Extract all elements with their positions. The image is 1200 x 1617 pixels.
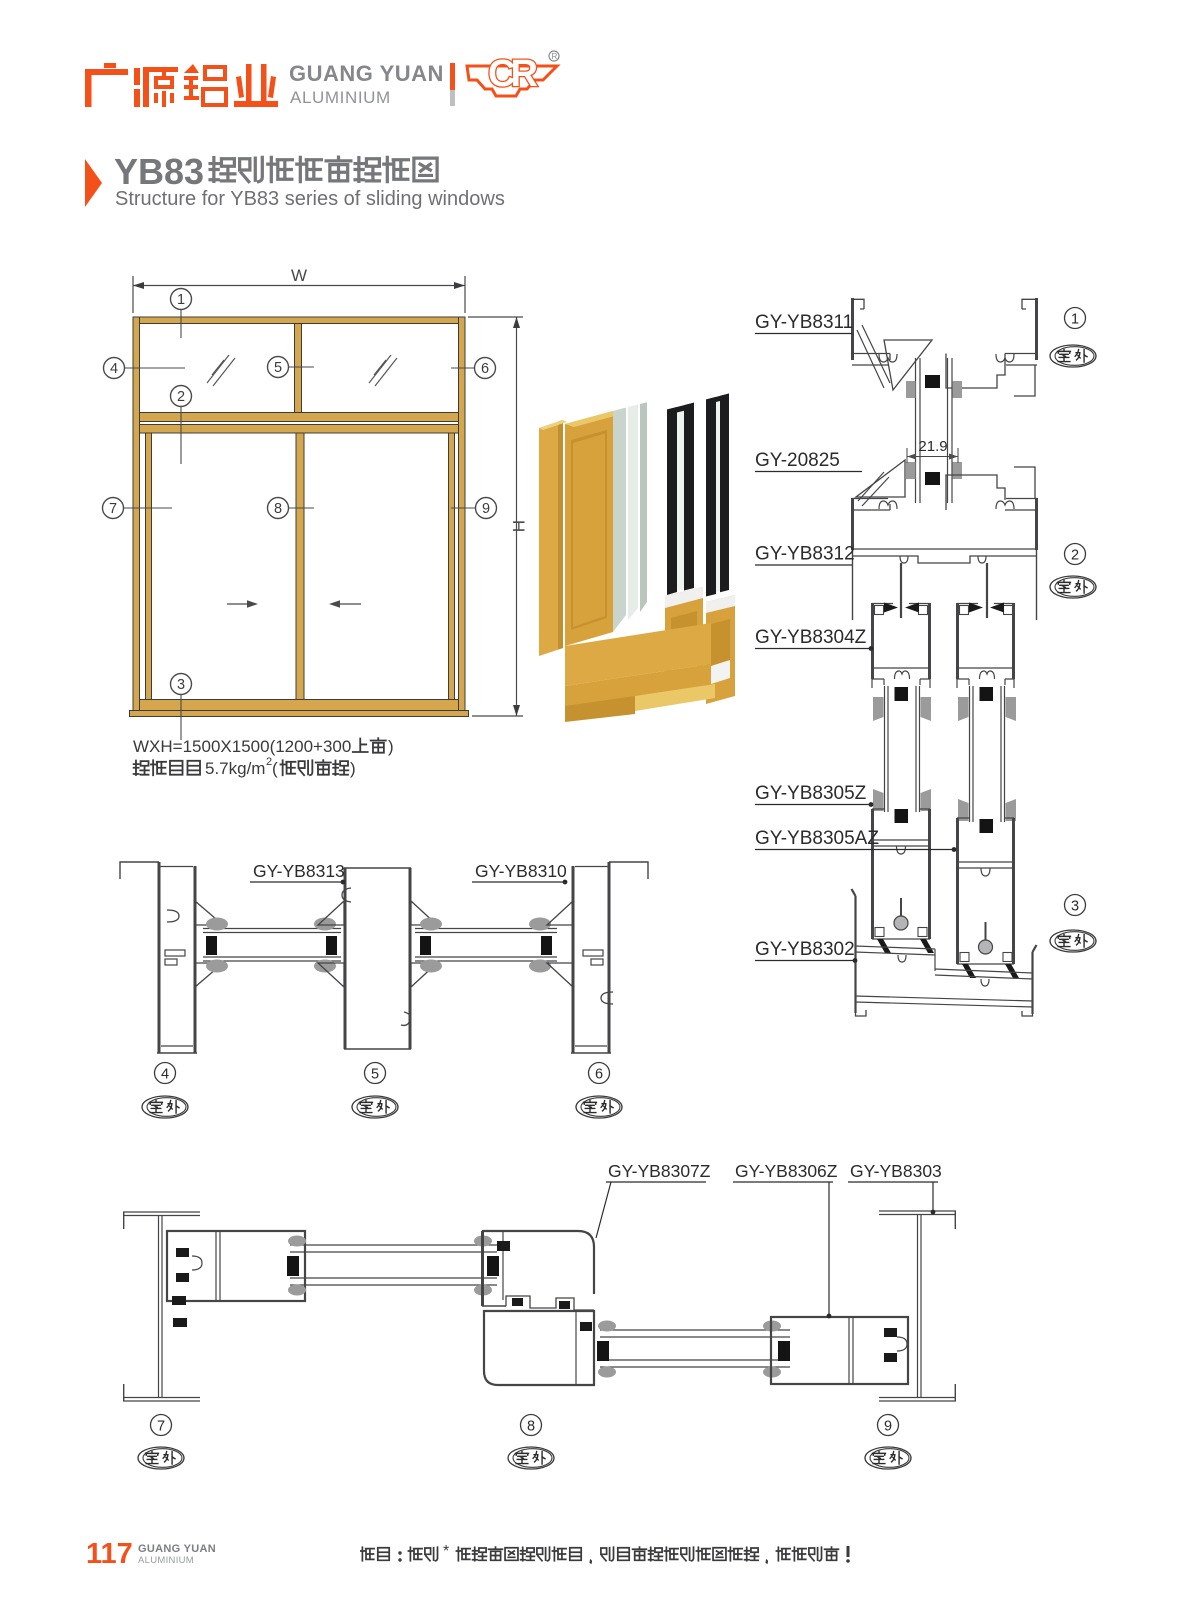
svg-text:8: 8 (274, 501, 282, 517)
svg-text:1: 1 (177, 292, 185, 308)
svg-text:GY-YB8306Z: GY-YB8306Z (735, 1161, 838, 1181)
svg-text:6: 6 (595, 1067, 603, 1083)
svg-text:7: 7 (109, 501, 117, 517)
svg-text:2: 2 (177, 389, 185, 405)
svg-text:GY-YB8310: GY-YB8310 (475, 861, 567, 881)
svg-text:*: * (443, 1543, 449, 1560)
svg-text:1: 1 (1071, 312, 1079, 328)
svg-text:3: 3 (1071, 899, 1079, 915)
svg-text:GY-YB8313: GY-YB8313 (253, 861, 345, 881)
svg-text:GY-YB8305Z: GY-YB8305Z (755, 783, 867, 804)
svg-text:9: 9 (884, 1419, 892, 1435)
svg-text:R: R (552, 52, 558, 61)
svg-text:GY-YB8302: GY-YB8302 (755, 939, 855, 960)
svg-text:5: 5 (371, 1067, 379, 1083)
svg-text:2: 2 (1071, 548, 1079, 564)
svg-text:GY-YB8307Z: GY-YB8307Z (608, 1161, 711, 1181)
svg-text:4: 4 (161, 1067, 169, 1083)
svg-text:W: W (291, 266, 307, 285)
svg-text:5: 5 (274, 360, 282, 376)
svg-text:GY-20825: GY-20825 (755, 450, 840, 471)
svg-text:): ) (350, 759, 356, 778)
svg-text:3: 3 (177, 677, 185, 693)
svg-text:WXH=1500X1500(1200+300: WXH=1500X1500(1200+300 (133, 737, 351, 756)
svg-text:4: 4 (110, 361, 118, 377)
svg-text:CR: CR (488, 53, 537, 95)
svg-text:): ) (388, 737, 394, 756)
svg-text:GY-YB8311: GY-YB8311 (755, 312, 853, 333)
svg-text:7: 7 (157, 1419, 165, 1435)
svg-text:9: 9 (482, 501, 490, 517)
svg-text:YB83: YB83 (114, 151, 204, 192)
svg-text:6: 6 (481, 361, 489, 377)
svg-text:GY-YB8312: GY-YB8312 (755, 544, 855, 565)
svg-text:21.9: 21.9 (918, 438, 947, 455)
svg-text:GY-YB8303: GY-YB8303 (850, 1161, 942, 1181)
svg-text:8: 8 (527, 1419, 535, 1435)
svg-text:(: ( (272, 759, 278, 778)
svg-text:GY-YB8304Z: GY-YB8304Z (755, 627, 867, 648)
svg-text:5.7kg/m: 5.7kg/m (205, 759, 265, 778)
svg-text:GY-YB8305AZ: GY-YB8305AZ (755, 828, 879, 849)
